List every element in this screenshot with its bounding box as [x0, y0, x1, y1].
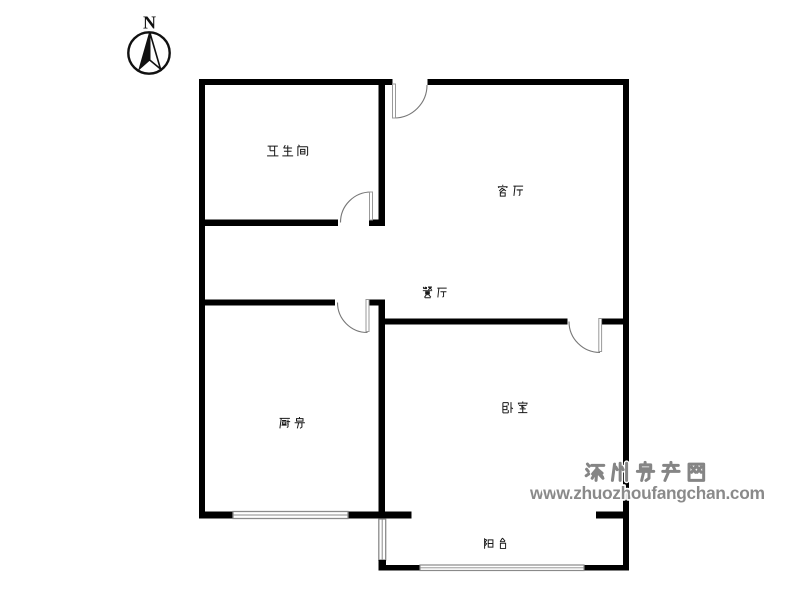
- svg-text:N: N: [143, 13, 156, 33]
- svg-text:www.zhuozhoufangchan.com: www.zhuozhoufangchan.com: [529, 483, 765, 503]
